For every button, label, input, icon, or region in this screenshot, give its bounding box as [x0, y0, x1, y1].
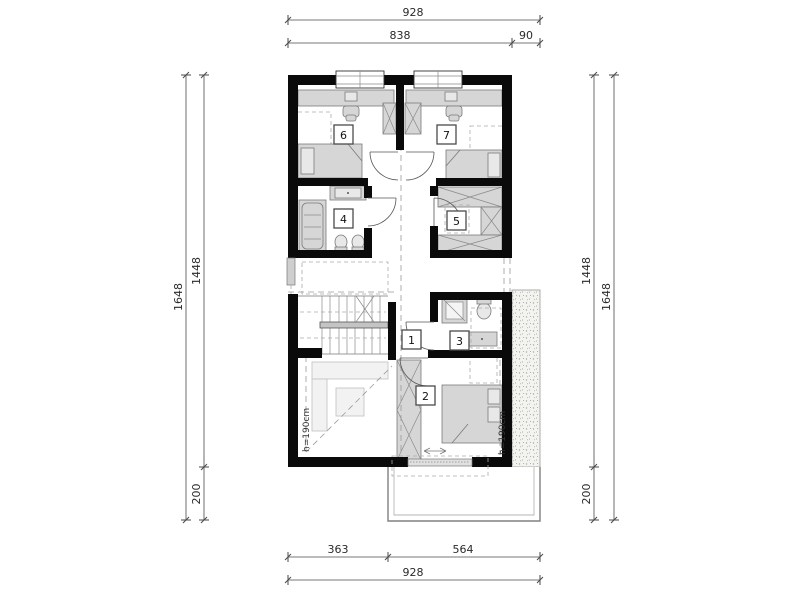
room-7-number: 7	[443, 129, 450, 142]
room-1-number: 1	[408, 334, 415, 347]
door-room-4	[368, 198, 396, 226]
bathtub	[299, 200, 326, 252]
balcony	[388, 467, 540, 521]
dim-left-outer: 1648	[172, 283, 185, 311]
dim-right-upper: 1448	[580, 257, 593, 285]
dim-bottom-total: 928	[403, 566, 424, 579]
sofa	[312, 379, 327, 431]
dim-bottom-right: 564	[453, 543, 474, 556]
floor-plan-page: 6 7 4 5 1 3 2 h=190cm h=190cm 928 838 90…	[0, 0, 800, 600]
dim-top-total: 928	[403, 6, 424, 19]
dimensions-bottom: 363 564 928	[285, 543, 543, 585]
window-left-wall	[287, 258, 295, 294]
room-6-number: 6	[340, 129, 347, 142]
dimensions-left: 1648 1448 200	[172, 72, 209, 523]
dim-top-main: 838	[390, 29, 411, 42]
room-4-number: 4	[340, 213, 347, 226]
dim-left-upper: 1448	[190, 257, 203, 285]
room-4-bathroom	[299, 186, 366, 254]
door-room-6	[370, 152, 398, 180]
slide-arrow-icon	[424, 448, 446, 454]
dim-bottom-left: 363	[328, 543, 349, 556]
toilet	[477, 303, 491, 319]
roof-window-outline	[470, 126, 503, 153]
pillow	[488, 389, 500, 404]
dim-left-lower: 200	[190, 484, 203, 505]
pillow	[488, 153, 500, 177]
room-5-number: 5	[453, 215, 460, 228]
room-3-number: 3	[456, 335, 463, 348]
pillow	[301, 148, 314, 174]
room-2-bedroom	[397, 357, 502, 460]
height-annotation-left: h=190cm	[302, 408, 312, 452]
height-annotation-right: h=190cm	[498, 411, 508, 455]
dim-right-outer: 1648	[600, 283, 613, 311]
dim-right-lower: 200	[580, 484, 593, 505]
sofa	[312, 362, 388, 379]
open-void-area	[306, 356, 392, 452]
dimensions-top: 928 838 90	[285, 6, 543, 48]
table	[336, 388, 364, 416]
floor-plan-drawing: 6 7 4 5 1 3 2 h=190cm h=190cm 928 838 90…	[0, 0, 800, 600]
window-room-7	[414, 71, 462, 88]
dimensions-right: 1448 200 1648	[580, 72, 619, 523]
staircase	[298, 262, 388, 354]
door-room-7	[406, 152, 434, 180]
room-2-number: 2	[422, 390, 429, 403]
dim-top-side: 90	[519, 29, 533, 42]
roof-below-stipple	[512, 290, 540, 467]
window-room-6	[336, 71, 384, 88]
